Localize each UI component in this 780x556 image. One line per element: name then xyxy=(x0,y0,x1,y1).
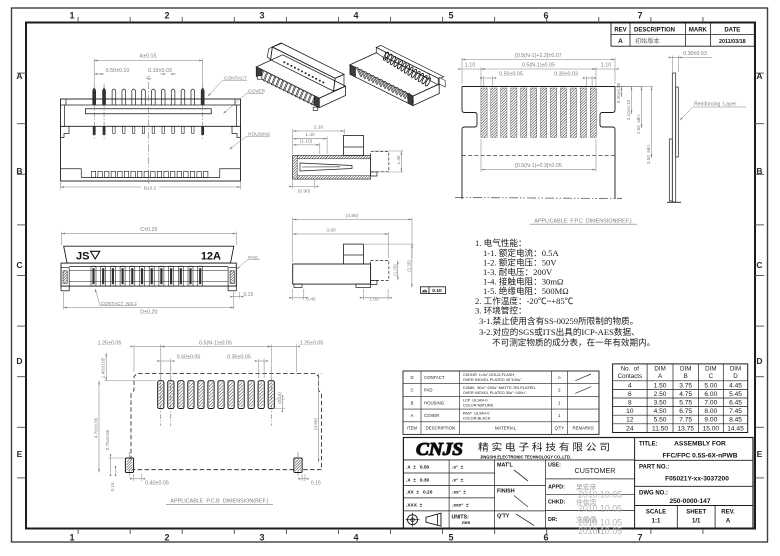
svg-text:10: 10 xyxy=(626,408,634,415)
svg-text:3. 环境管控：: 3. 环境管控： xyxy=(475,305,527,316)
svg-text:6: 6 xyxy=(628,391,632,398)
svg-text:6.75: 6.75 xyxy=(679,408,692,415)
svg-text:1-2. 额定电压：50V: 1-2. 额定电压：50V xyxy=(483,257,557,268)
svg-text:MARK: MARK xyxy=(689,28,708,34)
svg-text:1.00: 1.00 xyxy=(369,297,379,303)
svg-text:8.00: 8.00 xyxy=(704,408,717,415)
svg-text:8: 8 xyxy=(628,400,632,407)
svg-text:DIM: DIM xyxy=(705,366,716,373)
svg-text:APPD:: APPD: xyxy=(548,485,565,491)
svg-text:.x° ±: .x° ± xyxy=(452,464,464,470)
svg-text:4.70±0.05: 4.70±0.05 xyxy=(94,417,99,438)
svg-text:DIM: DIM xyxy=(730,366,741,373)
svg-text:.x° ±: .x° ± xyxy=(452,477,464,483)
svg-text:DESCRIPTION: DESCRIPTION xyxy=(426,426,455,431)
svg-text:0.5(N-1)±0.05: 0.5(N-1)±0.05 xyxy=(199,341,232,347)
svg-text:(4.85): (4.85) xyxy=(346,213,359,219)
svg-text:HOUSING: HOUSING xyxy=(424,400,445,405)
svg-text:0.50±0.05: 0.50±0.05 xyxy=(499,71,523,77)
svg-text:2: 2 xyxy=(164,11,169,21)
svg-text:1.10: 1.10 xyxy=(465,62,475,68)
svg-text:2010.10.05: 2010.10.05 xyxy=(578,490,622,500)
svg-text:(0.15): (0.15) xyxy=(277,392,282,404)
svg-text:0.30±0.05: 0.30±0.05 xyxy=(616,82,621,103)
svg-text:12A: 12A xyxy=(201,251,221,263)
svg-text:A: A xyxy=(16,71,22,81)
svg-text:DIM: DIM xyxy=(680,366,691,373)
svg-text:COVER: COVER xyxy=(424,413,439,418)
svg-text:3: 3 xyxy=(259,533,264,543)
svg-text:12: 12 xyxy=(626,417,634,424)
svg-text:5: 5 xyxy=(448,533,453,543)
svg-text:0.30±0.03: 0.30±0.03 xyxy=(554,71,578,77)
svg-text:REV.: REV. xyxy=(721,510,735,516)
svg-text:ITEM: ITEM xyxy=(407,426,418,431)
svg-text:APPLICABLE F.P.C DIMENSION(R: APPLICABLE F.P.C DIMENSION(REF.) xyxy=(534,219,631,225)
svg-text:1.50: 1.50 xyxy=(654,382,667,389)
svg-text:B: B xyxy=(16,166,22,176)
svg-text:DR:: DR: xyxy=(548,517,558,523)
svg-text:24: 24 xyxy=(626,425,634,432)
svg-text:D: D xyxy=(756,356,762,366)
svg-text:0.75±0.05: 0.75±0.05 xyxy=(105,429,110,450)
svg-text:6.00: 6.00 xyxy=(704,391,717,398)
svg-text:1. 电气性能：: 1. 电气性能： xyxy=(475,237,527,248)
svg-text:3.90: 3.90 xyxy=(326,227,336,233)
svg-text:.xxx° ±: .xxx° ± xyxy=(452,502,469,508)
svg-text:USE:: USE: xyxy=(548,463,561,469)
svg-text:2. 工作温度：-20℃~+85℃: 2. 工作温度：-20℃~+85℃ xyxy=(475,295,574,306)
svg-text:CNJS: CNJS xyxy=(416,439,463,459)
svg-text:4.75: 4.75 xyxy=(679,391,692,398)
svg-text:1.25±0.05: 1.25±0.05 xyxy=(98,341,122,347)
svg-text:C: C xyxy=(16,260,22,270)
svg-text:C±0.25: C±0.25 xyxy=(140,227,157,233)
svg-text:4: 4 xyxy=(628,382,632,389)
svg-text:D: D xyxy=(410,375,413,380)
svg-text:4.50: 4.50 xyxy=(654,408,667,415)
svg-text:TITLE:: TITLE: xyxy=(639,442,658,448)
svg-text:PART NO.:: PART NO.: xyxy=(639,464,669,470)
svg-text:SHEET: SHEET xyxy=(686,510,706,516)
svg-text:1.25±0.05: 1.25±0.05 xyxy=(300,341,324,347)
svg-text:7.75: 7.75 xyxy=(679,417,692,424)
svg-text:(0.90): (0.90) xyxy=(298,188,311,194)
svg-text:250-0000-147: 250-0000-147 xyxy=(669,498,710,505)
svg-text:1-4. 接触电阻：30mΩ: 1-4. 接触电阻：30mΩ xyxy=(483,276,563,287)
svg-text:2011/03/18: 2011/03/18 xyxy=(719,39,746,45)
svg-text:1.40: 1.40 xyxy=(396,155,401,164)
svg-text:E: E xyxy=(757,449,763,459)
svg-text:0.15±0.03: 0.15±0.03 xyxy=(148,68,172,74)
svg-text:Q'TY: Q'TY xyxy=(555,426,565,431)
svg-text:15.00: 15.00 xyxy=(703,425,720,432)
svg-text:B: B xyxy=(756,166,762,176)
svg-text:4: 4 xyxy=(353,11,358,21)
svg-text:7: 7 xyxy=(637,11,642,21)
svg-text:A±0.15: A±0.15 xyxy=(140,54,157,60)
svg-text:2.50: 2.50 xyxy=(654,391,667,398)
svg-text:3.75: 3.75 xyxy=(679,382,692,389)
svg-text:1: 1 xyxy=(69,533,74,543)
svg-text:.XX ± 0.20: .XX ± 0.20 xyxy=(406,490,433,496)
svg-text:JS: JS xyxy=(76,251,89,263)
svg-text:C: C xyxy=(147,76,151,82)
svg-text:6.45: 6.45 xyxy=(729,400,742,407)
svg-text:OVER NICKEL PLATED 30u"~100u".: OVER NICKEL PLATED 30u"~100u". xyxy=(463,390,527,395)
svg-text:2.50 Min.: 2.50 Min. xyxy=(636,114,641,134)
svg-text:2010.10.05: 2010.10.05 xyxy=(578,526,622,536)
svg-text:E: E xyxy=(17,449,23,459)
svg-text:5.75: 5.75 xyxy=(679,400,692,407)
svg-text:5.00: 5.00 xyxy=(704,382,717,389)
svg-text:.XXX ±: .XXX ± xyxy=(406,502,426,508)
svg-text:[0.5(N-1)+0.3]±0.05: [0.5(N-1)+0.3]±0.05 xyxy=(515,163,561,169)
svg-text:5.50: 5.50 xyxy=(654,417,667,424)
svg-text:7: 7 xyxy=(637,533,642,543)
svg-text:Q'TY: Q'TY xyxy=(497,514,510,520)
svg-text:4.45: 4.45 xyxy=(729,382,742,389)
svg-text:1-3. 耐电压：200V: 1-3. 耐电压：200V xyxy=(483,266,553,277)
svg-text:Reinforcing Layer: Reinforcing Layer xyxy=(694,101,736,107)
svg-text:SCALE: SCALE xyxy=(646,510,666,516)
svg-text:D: D xyxy=(733,373,738,380)
svg-text:ASSEMBLY FOR: ASSEMBLY FOR xyxy=(674,441,726,448)
svg-text:3.50: 3.50 xyxy=(654,400,667,407)
svg-text:Contacts: Contacts xyxy=(618,373,642,380)
svg-text:B±0.2: B±0.2 xyxy=(144,185,157,191)
svg-text:1-5. 绝缘电阻：500MΩ: 1-5. 绝缘电阻：500MΩ xyxy=(483,285,569,296)
svg-text:3-2.对应的SGS或ITS出具的ICP-AES数据、: 3-2.对应的SGS或ITS出具的ICP-AES数据、 xyxy=(479,326,640,337)
svg-text:.X ± 0.30: .X ± 0.30 xyxy=(406,477,429,483)
svg-text:0.10: 0.10 xyxy=(432,288,442,294)
svg-text:REMARKS: REMARKS xyxy=(573,426,594,431)
svg-text:C: C xyxy=(756,260,762,270)
svg-text:7.45: 7.45 xyxy=(729,408,742,415)
svg-text:.X ± 0.50: .X ± 0.50 xyxy=(406,464,429,470)
svg-text:0.30±0.03: 0.30±0.03 xyxy=(683,51,707,57)
svg-text:REV: REV xyxy=(614,28,626,34)
svg-text:DATE: DATE xyxy=(724,28,740,34)
svg-text:F05021Y-xx-3037200: F05021Y-xx-3037200 xyxy=(665,476,729,483)
svg-text:13.75: 13.75 xyxy=(677,425,694,432)
svg-text:8.45: 8.45 xyxy=(729,417,742,424)
svg-text:C: C xyxy=(709,373,714,380)
svg-text:A: A xyxy=(411,413,414,418)
svg-text:初始版本: 初始版本 xyxy=(635,37,660,45)
svg-text:FINISH: FINISH xyxy=(497,488,515,494)
svg-text:[0.5(N-1)+2.2]±0.07: [0.5(N-1)+2.2]±0.07 xyxy=(515,53,561,59)
svg-text:精 实 电 子 科 技 有 限 公 司: 精 实 电 子 科 技 有 限 公 司 xyxy=(478,442,610,454)
svg-text:11.50: 11.50 xyxy=(652,425,668,432)
svg-text:2.10±0.10: 2.10±0.10 xyxy=(626,99,631,120)
svg-text:1:1: 1:1 xyxy=(652,519,661,525)
svg-text:PAD: PAD xyxy=(424,388,433,393)
svg-text:2010.10.05: 2010.10.05 xyxy=(578,504,622,514)
svg-text:0.40±0.05: 0.40±0.05 xyxy=(145,480,169,486)
svg-text:COLOR:NATURE: COLOR:NATURE xyxy=(463,403,494,408)
svg-text:mm: mm xyxy=(462,520,470,525)
svg-text:3-1.禁止使用含有SS-00259所限制的物质。: 3-1.禁止使用含有SS-00259所限制的物质。 xyxy=(479,315,638,326)
svg-text:(1.25): (1.25) xyxy=(392,264,397,276)
svg-text:(2.35): (2.35) xyxy=(406,260,411,272)
svg-text:2: 2 xyxy=(164,533,169,543)
svg-text:FFC/FPC 0.5S-6X-nPWB: FFC/FPC 0.5S-6X-nPWB xyxy=(662,453,737,460)
svg-text:0.15: 0.15 xyxy=(110,482,115,491)
svg-text:7.00: 7.00 xyxy=(704,400,717,407)
svg-text:No. of: No. of xyxy=(621,366,640,373)
svg-text:1.10: 1.10 xyxy=(601,62,611,68)
svg-text:CUSTOMER: CUSTOMER xyxy=(575,466,616,475)
svg-text:1: 1 xyxy=(69,11,74,21)
svg-text:5: 5 xyxy=(448,11,453,21)
svg-text:0.15: 0.15 xyxy=(244,292,254,298)
svg-text:1-1. 额定电流：0.5A: 1-1. 额定电流：0.5A xyxy=(483,247,559,258)
svg-text:DESCRIPTION: DESCRIPTION xyxy=(634,28,675,34)
svg-text:5.45: 5.45 xyxy=(729,391,742,398)
svg-text:1/1: 1/1 xyxy=(692,519,701,525)
svg-text:0.50±0.05: 0.50±0.05 xyxy=(177,355,201,361)
svg-text:CONTACT: CONTACT xyxy=(424,375,445,380)
svg-text:0.5(N-1)±0.05: 0.5(N-1)±0.05 xyxy=(522,62,555,68)
svg-text:C: C xyxy=(410,388,413,393)
svg-text:6: 6 xyxy=(543,11,548,21)
svg-text:MATERIAL: MATERIAL xyxy=(495,426,517,431)
svg-text:不可测定物质的成分表，在一年有效期内。: 不可测定物质的成分表，在一年有效期内。 xyxy=(492,337,655,348)
svg-text:A: A xyxy=(618,38,623,45)
svg-text:1.40±0.05: 1.40±0.05 xyxy=(101,357,106,378)
svg-text:9.00: 9.00 xyxy=(704,417,717,424)
svg-text:0.50±0.10: 0.50±0.10 xyxy=(106,68,130,74)
svg-text:(4.55): (4.55) xyxy=(313,418,318,430)
svg-text:D±0.20: D±0.20 xyxy=(140,310,157,316)
svg-text:4: 4 xyxy=(353,533,358,543)
svg-text:2.10: 2.10 xyxy=(314,124,324,130)
svg-text:JINGSHI ELECTRONIC TECHNOLOGY: JINGSHI ELECTRONIC TECHNOLOGY CO.,LTD. xyxy=(480,454,571,459)
svg-text:OVER NICKEL PLATED 30"100u".: OVER NICKEL PLATED 30"100u". xyxy=(463,377,523,382)
svg-text:0.45: 0.45 xyxy=(306,297,316,303)
svg-text:3: 3 xyxy=(259,11,264,21)
svg-text:B: B xyxy=(684,373,688,380)
svg-text:D: D xyxy=(16,356,22,366)
svg-text:0.30±0.05: 0.30±0.05 xyxy=(227,355,251,361)
svg-text:14.45: 14.45 xyxy=(727,425,744,432)
svg-text:DWG NO.:: DWG NO.: xyxy=(639,491,668,497)
svg-text:A: A xyxy=(726,519,731,525)
svg-text:COLOR:BLACK: COLOR:BLACK xyxy=(463,415,491,420)
svg-text:APPLICABLE P.C.B DIMENSION(R: APPLICABLE P.C.B DIMENSION(REF.) xyxy=(170,499,268,505)
svg-text:1.40: 1.40 xyxy=(305,132,315,138)
svg-text:MAT'L: MAT'L xyxy=(497,463,514,469)
svg-text:6: 6 xyxy=(543,533,548,543)
svg-text:.xx° ±: .xx° ± xyxy=(452,490,466,496)
svg-text:(1.10): (1.10) xyxy=(300,138,313,144)
svg-text:0.15: 0.15 xyxy=(311,480,321,486)
svg-text:DIM: DIM xyxy=(654,366,665,373)
svg-text:A: A xyxy=(756,71,762,81)
svg-text:B: B xyxy=(411,400,414,405)
svg-text:CHKD:: CHKD: xyxy=(548,500,566,506)
svg-text:3.50 Min.: 3.50 Min. xyxy=(646,144,651,164)
